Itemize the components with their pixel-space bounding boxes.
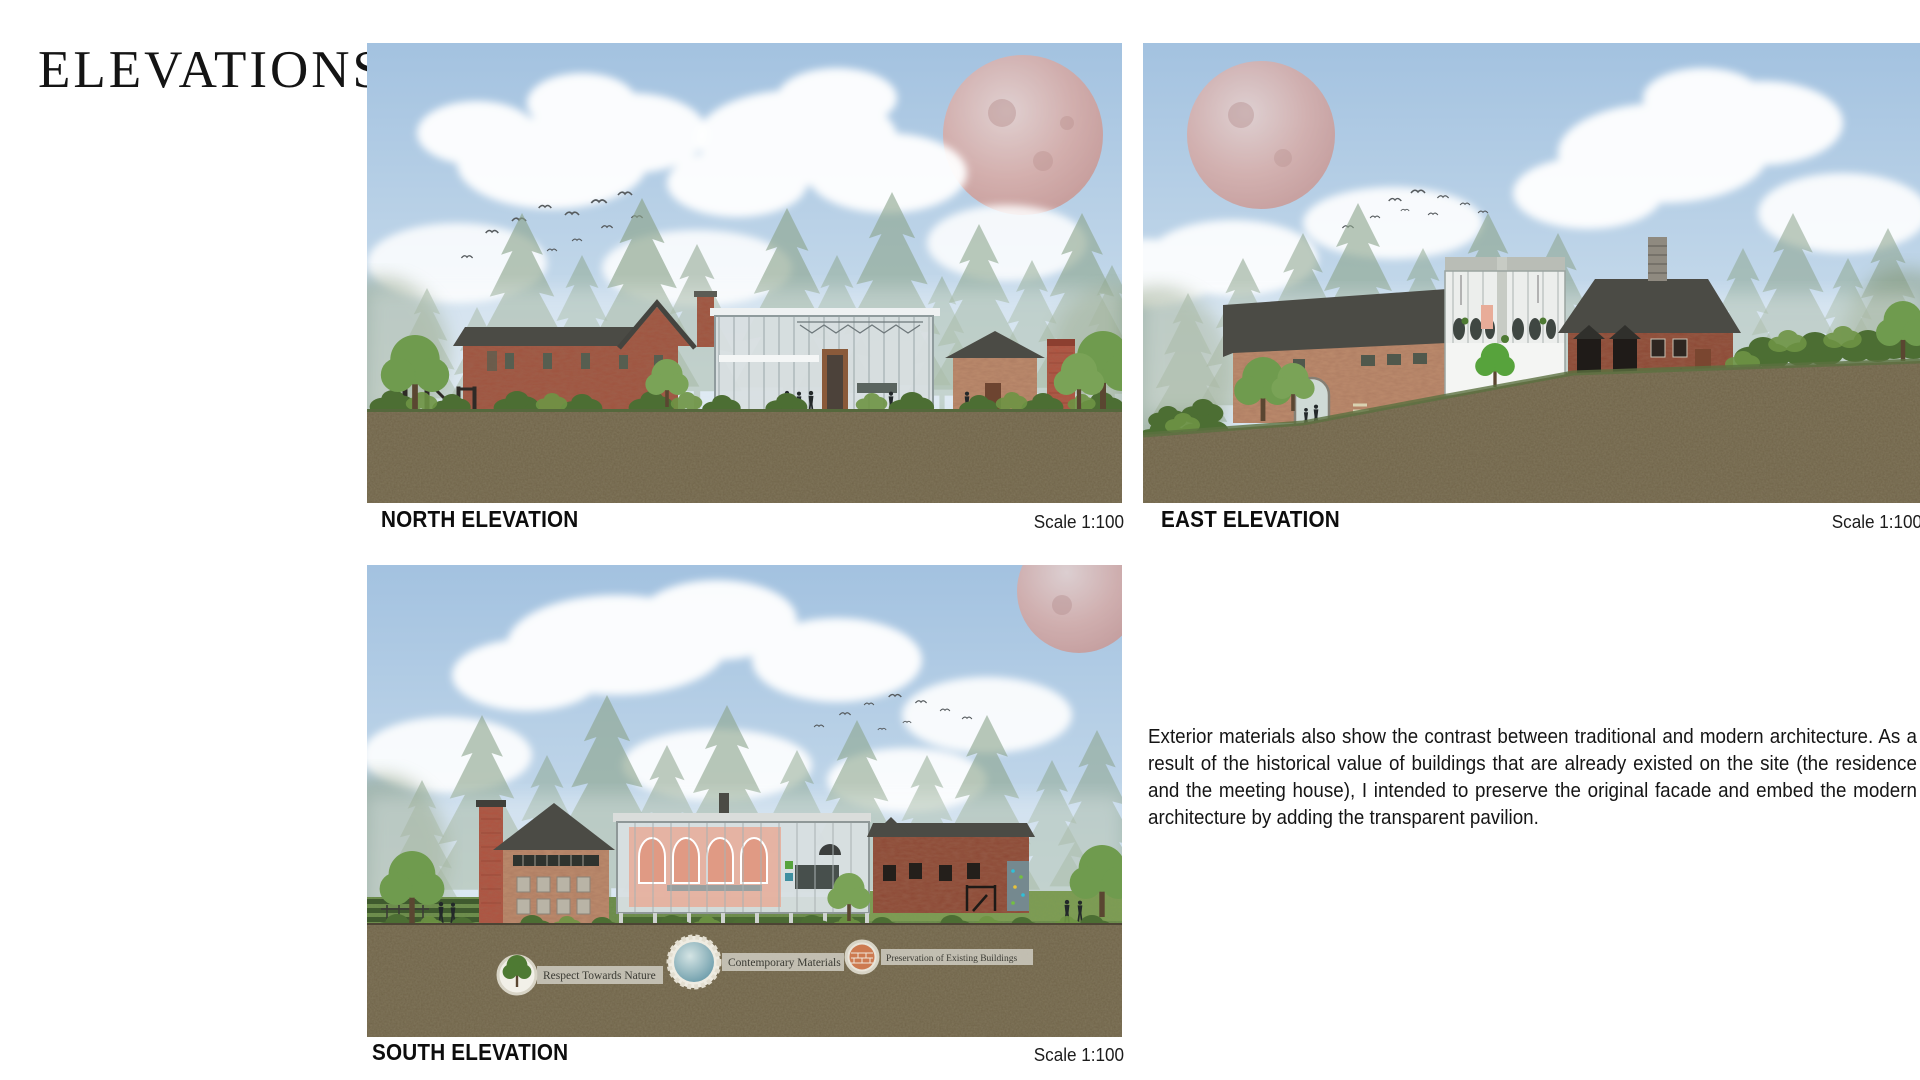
south-caption: SOUTH ELEVATION [372,1039,568,1066]
page-title: ELEVATIONS [38,40,385,100]
north-caption: NORTH ELEVATION [381,506,578,533]
legend-preservation-label: Preservation of Existing Buildings [886,953,1017,964]
ground-soil [367,923,1122,1037]
climbing-wall [1007,861,1029,911]
east-scale-label: Scale 1:100 [1832,512,1920,533]
panel-south: Respect Towards Nature Contemporary Mate… [367,565,1122,1037]
south-caption-row: SOUTH ELEVATION Scale 1:100 [367,1036,1124,1066]
chimney-tower [476,800,506,923]
south-scale-label: Scale 1:100 [1034,1045,1124,1066]
north-caption-row: NORTH ELEVATION Scale 1:100 [367,503,1124,533]
legend-materials-label: Contemporary Materials [728,957,841,969]
legend-nature-label: Respect Towards Nature [543,970,656,982]
description-paragraph: Exterior materials also show the contras… [1148,724,1917,832]
north-elevation-render [367,43,1122,503]
east-caption-row: EAST ELEVATION Scale 1:100 [1143,503,1920,533]
south-elevation-render: Respect Towards Nature Contemporary Mate… [367,565,1122,1037]
panel-east: EAST ELEVATION [1143,43,1920,503]
north-scale-label: Scale 1:100 [1034,512,1124,533]
east-elevation-render [1143,43,1920,503]
ground-soil [367,409,1122,503]
moon-icon [1187,61,1335,209]
panel-north: NORTH ELEVATION [367,43,1122,503]
east-caption: EAST ELEVATION [1161,506,1340,533]
moon-icon [943,55,1103,215]
meeting-hall-building [867,817,1035,913]
